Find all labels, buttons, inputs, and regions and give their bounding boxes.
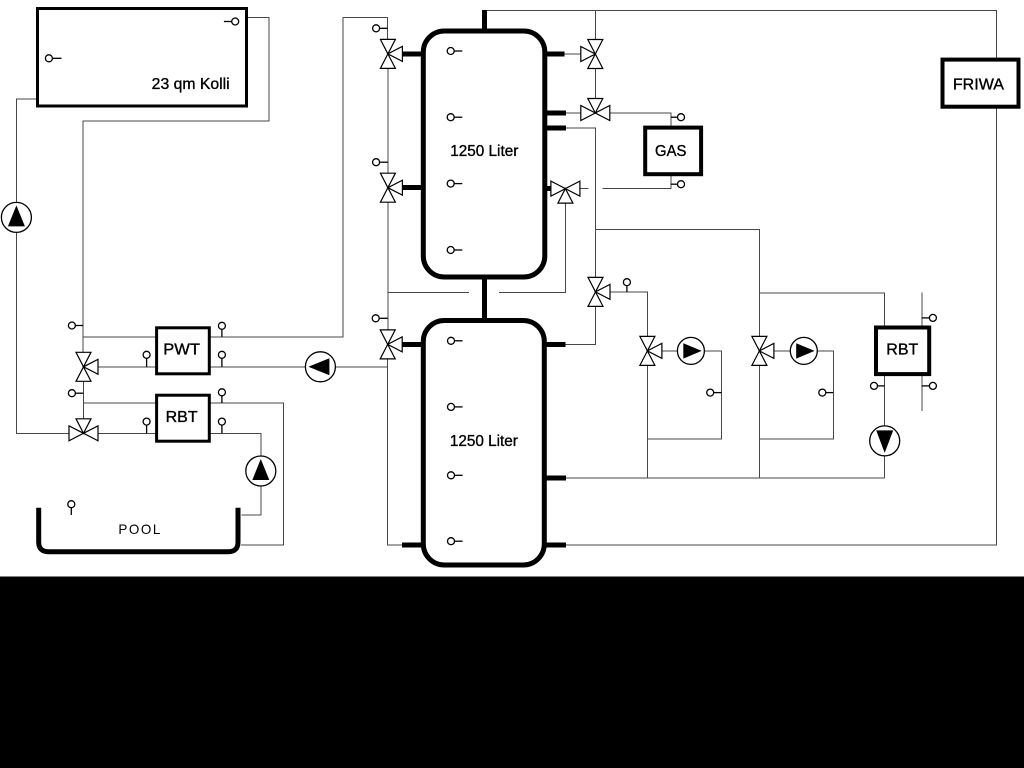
svg-text:RBT: RBT bbox=[886, 341, 919, 358]
svg-text:1250 Liter: 1250 Liter bbox=[450, 143, 518, 160]
svg-text:PWT: PWT bbox=[163, 341, 200, 358]
svg-text:FRIWA: FRIWA bbox=[953, 76, 1004, 93]
svg-text:RBT: RBT bbox=[166, 409, 199, 426]
svg-text:POOL: POOL bbox=[118, 521, 162, 537]
svg-text:23 qm Kolli: 23 qm Kolli bbox=[152, 76, 230, 93]
svg-text:GAS: GAS bbox=[655, 143, 686, 160]
svg-text:1250 Liter: 1250 Liter bbox=[450, 433, 518, 450]
